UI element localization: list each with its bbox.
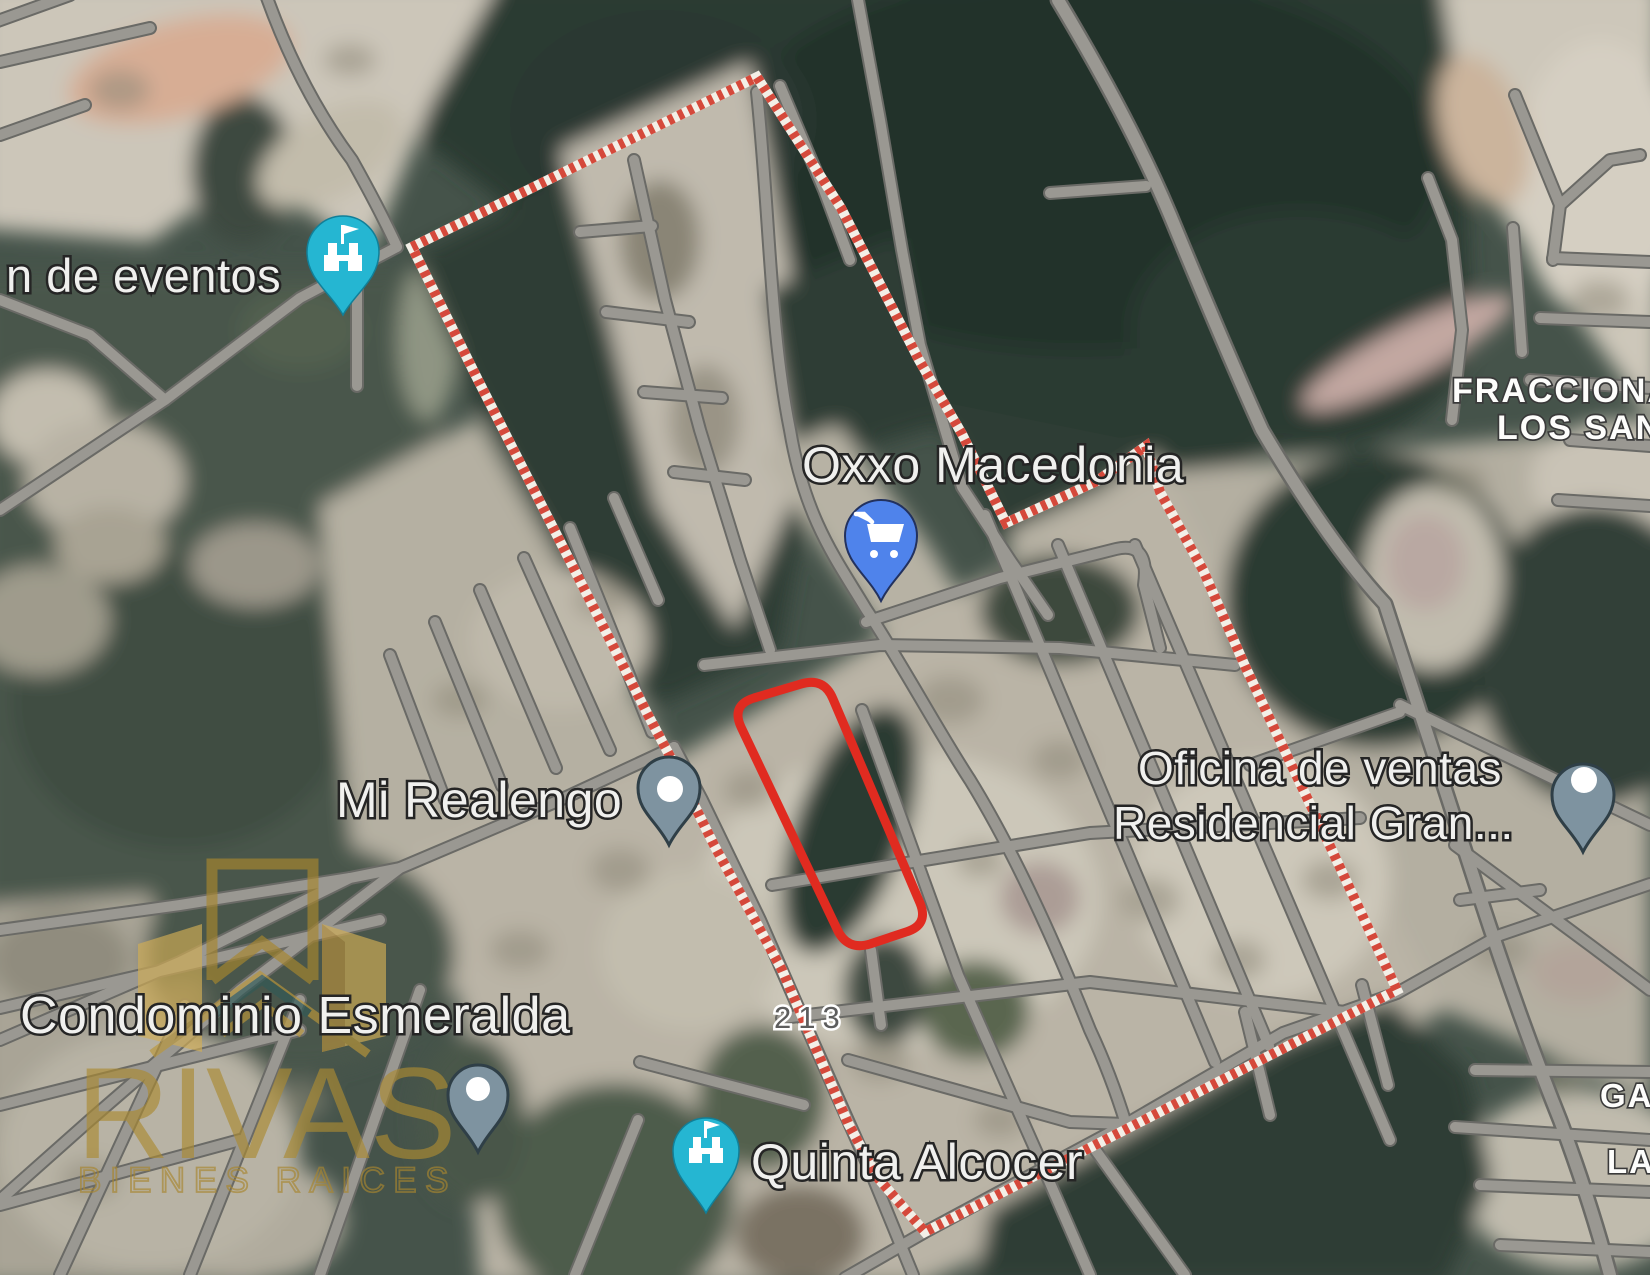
svg-text:GA: GA [1600, 1077, 1650, 1114]
svg-text:LOS SANTOS: LOS SANTOS [1497, 409, 1650, 447]
svg-text:LA: LA [1607, 1143, 1650, 1180]
svg-text:Residencial Gran...: Residencial Gran... [1113, 797, 1514, 849]
svg-text:Oxxo Macedonia: Oxxo Macedonia [802, 437, 1184, 493]
svg-text:213: 213 [774, 1000, 847, 1035]
svg-text:Quinta Alcocer: Quinta Alcocer [751, 1134, 1083, 1190]
svg-text:n de eventos: n de eventos [6, 249, 281, 302]
svg-text:BIENES RAICES: BIENES RAICES [78, 1161, 457, 1200]
svg-text:Condominio Esmeralda: Condominio Esmeralda [20, 987, 571, 1045]
svg-text:FRACCIONAMIENTO: FRACCIONAMIENTO [1452, 372, 1650, 410]
svg-text:Oficina de ventas: Oficina de ventas [1138, 742, 1502, 794]
svg-text:Mi Realengo: Mi Realengo [336, 772, 622, 828]
